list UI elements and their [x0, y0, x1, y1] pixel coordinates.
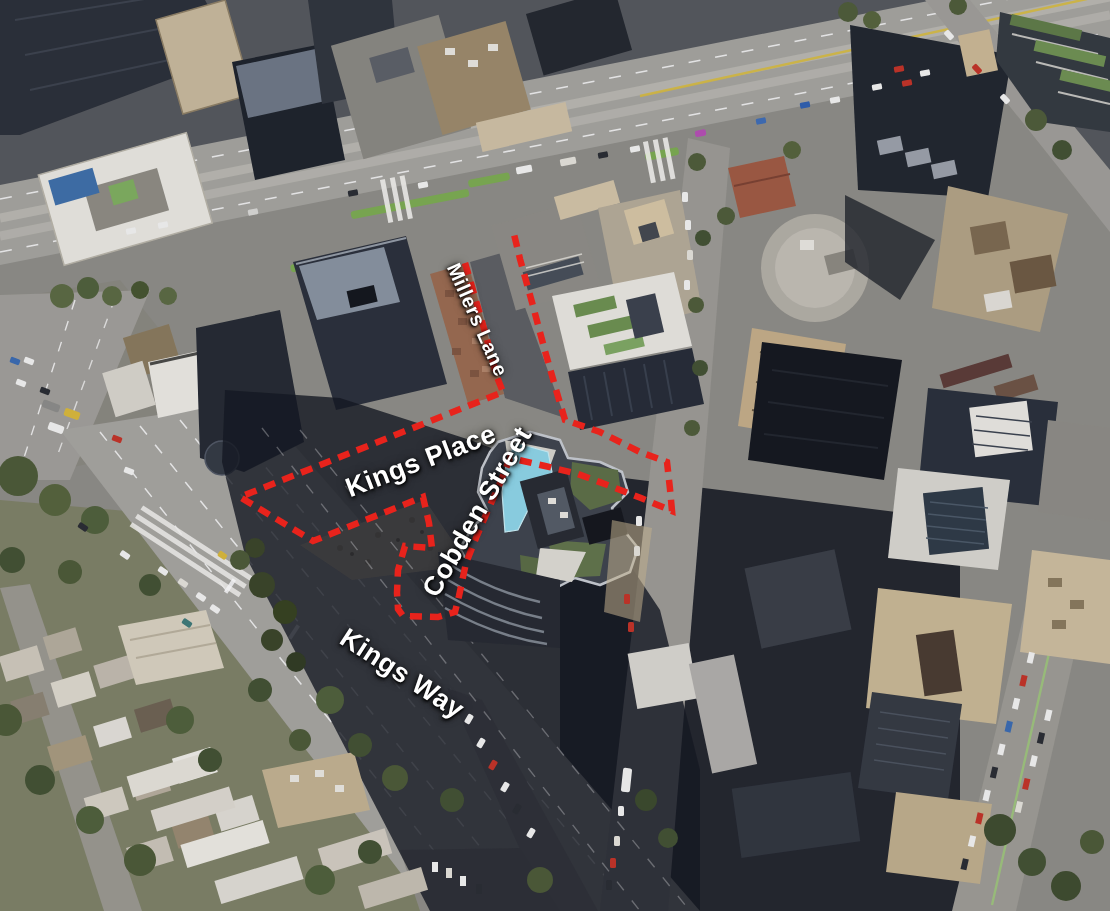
site-boundary-overlay — [0, 0, 1110, 911]
annotated-aerial-map: Millers Lane Kings Place Cobden Street K… — [0, 0, 1110, 911]
